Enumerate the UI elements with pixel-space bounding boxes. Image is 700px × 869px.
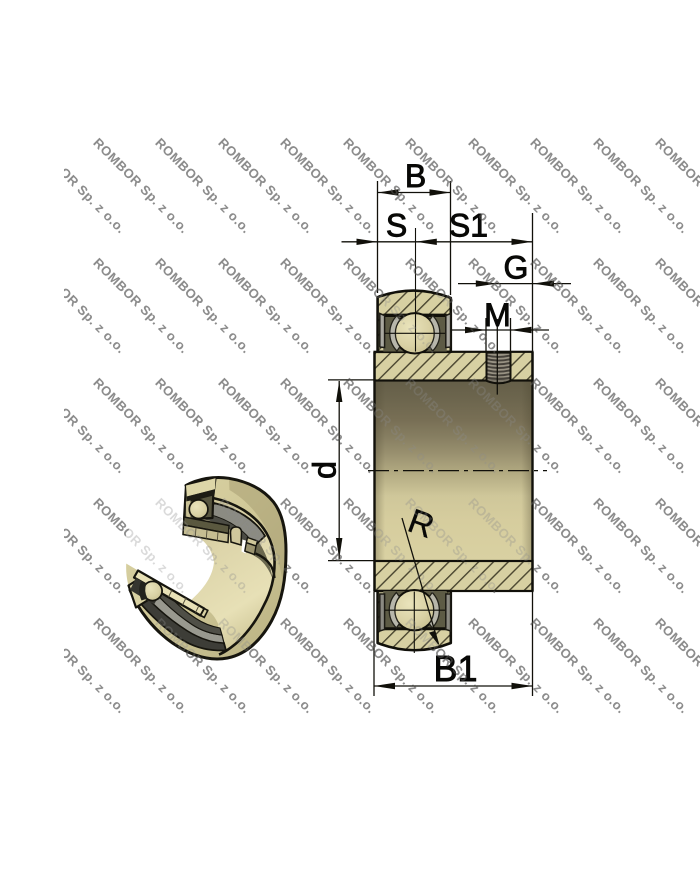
svg-text:d: d: [307, 461, 343, 479]
svg-text:B: B: [405, 158, 426, 194]
svg-text:S: S: [386, 208, 407, 244]
svg-text:M: M: [484, 297, 511, 333]
svg-text:G: G: [504, 250, 529, 286]
svg-text:B1: B1: [433, 648, 477, 689]
svg-text:S1: S1: [449, 208, 488, 244]
